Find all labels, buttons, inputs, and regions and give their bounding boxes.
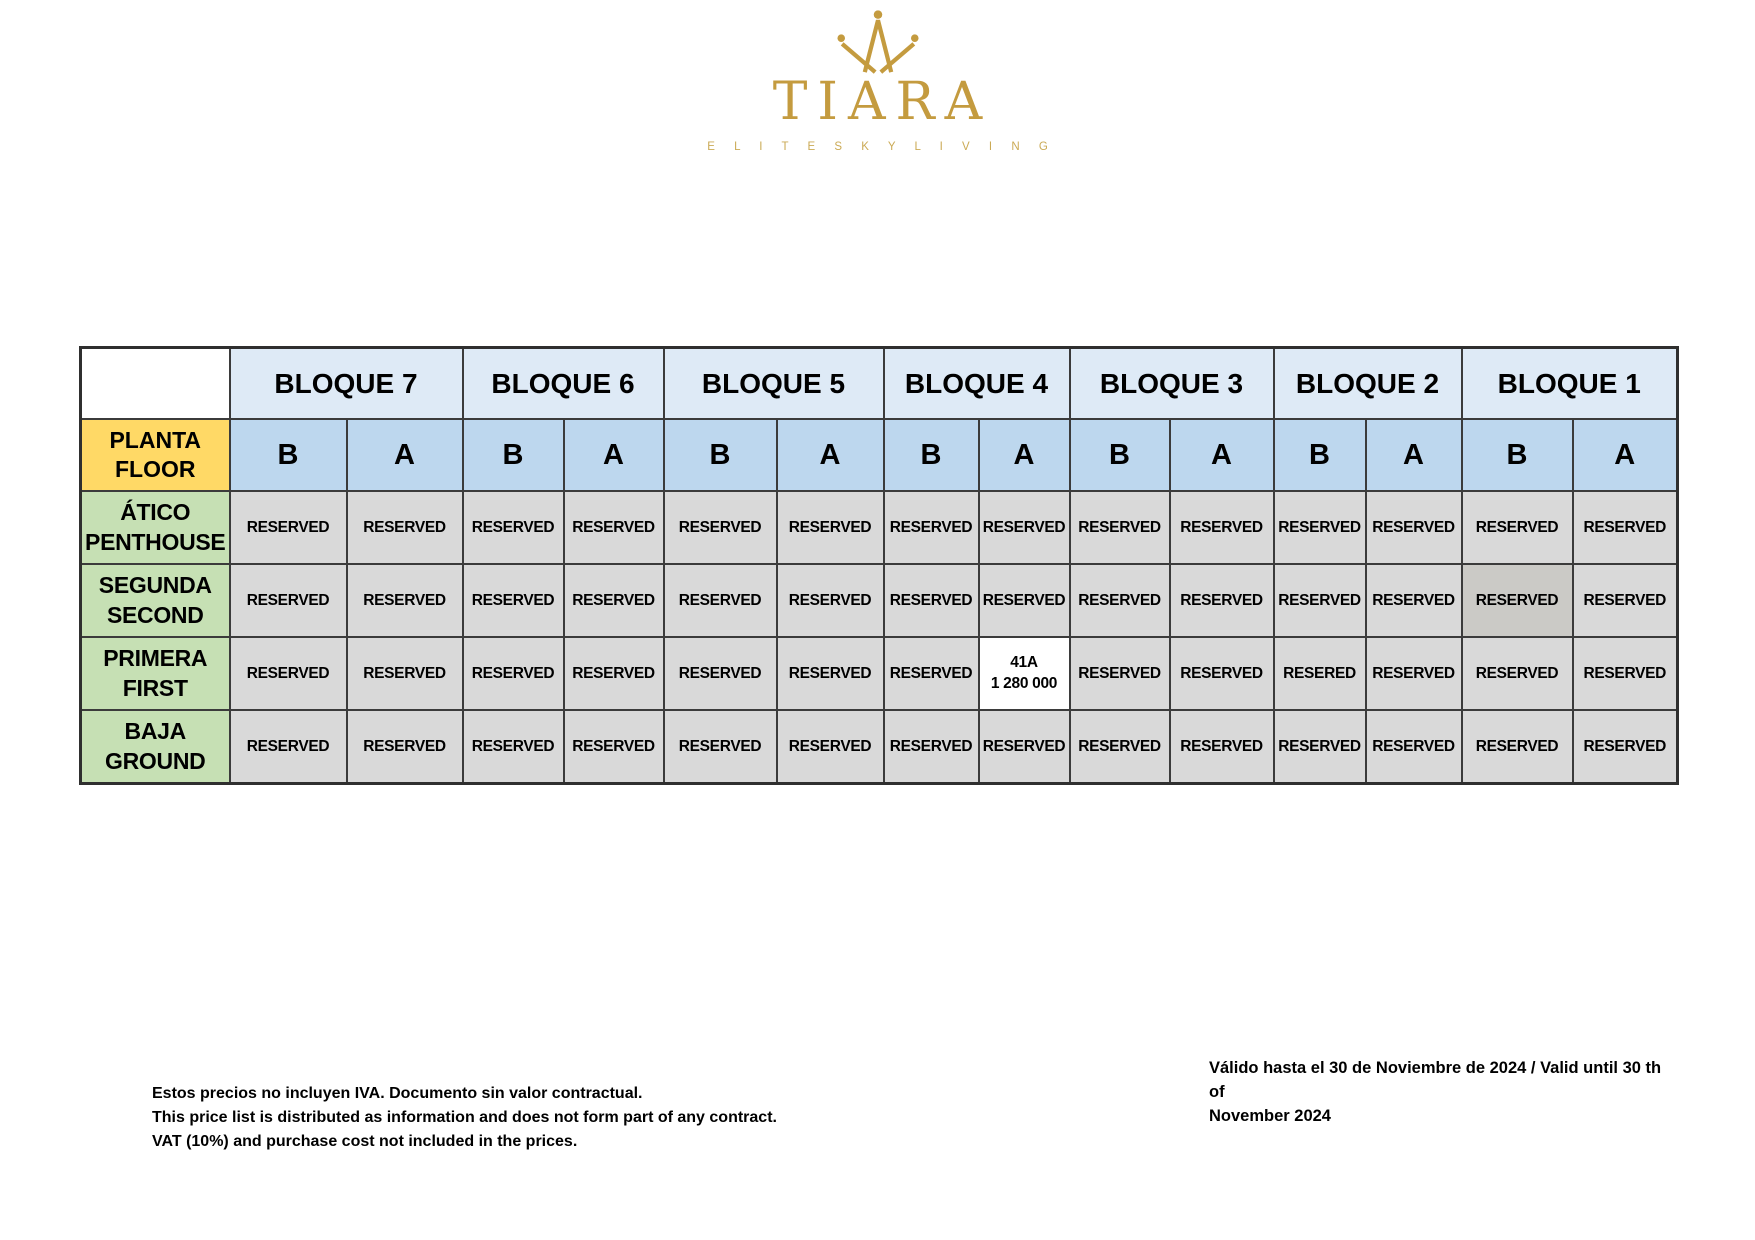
reserved-cell: RESERVED <box>347 564 463 637</box>
reserved-cell: RESERVED <box>777 491 884 564</box>
reserved-cell: RESERVED <box>1462 710 1573 784</box>
reserved-cell: RESERVED <box>664 637 777 710</box>
reserved-cell: RESERVED <box>1366 637 1462 710</box>
price-table: BLOQUE 7BLOQUE 6BLOQUE 5BLOQUE 4BLOQUE 3… <box>79 346 1679 785</box>
reserved-cell: RESERVED <box>1366 710 1462 784</box>
reserved-cell: RESERVED <box>1070 710 1170 784</box>
available-cell-line: 41A <box>982 653 1067 674</box>
column-letter-7A: A <box>347 419 463 491</box>
reserved-cell: RESERVED <box>1462 564 1573 637</box>
reserved-cell: RESERVED <box>463 491 564 564</box>
reserved-cell: RESERVED <box>1170 491 1274 564</box>
column-letter-4A: A <box>979 419 1070 491</box>
crown-icon <box>830 8 926 74</box>
bloque-header-2: BLOQUE 2 <box>1274 348 1462 420</box>
table-corner-blank <box>81 348 230 420</box>
column-letter-3A: A <box>1170 419 1274 491</box>
reserved-cell: RESERVED <box>1274 564 1366 637</box>
reserved-cell: RESERVED <box>564 637 664 710</box>
column-letter-3B: B <box>1070 419 1170 491</box>
floor-label-line: SECOND <box>84 601 227 630</box>
column-letter-5B: B <box>664 419 777 491</box>
footer-disclaimer-line: VAT (10%) and purchase cost not included… <box>152 1130 777 1154</box>
reserved-cell: RESERVED <box>1274 710 1366 784</box>
reserved-cell: RESERVED <box>230 564 347 637</box>
column-letter-7B: B <box>230 419 347 491</box>
reserved-cell: RESERVED <box>1070 637 1170 710</box>
reserved-cell: RESERVED <box>664 564 777 637</box>
available-cell-line: 1 280 000 <box>982 674 1067 695</box>
floor-label: BAJAGROUND <box>81 710 230 784</box>
column-letter-4B: B <box>884 419 979 491</box>
reserved-cell: RESERVED <box>1170 710 1274 784</box>
planta-floor-header: PLANTAFLOOR <box>81 419 230 491</box>
bloque-header-7: BLOQUE 7 <box>230 348 463 420</box>
reserved-cell: RESERVED <box>1070 564 1170 637</box>
reserved-cell: RESERVED <box>664 491 777 564</box>
floor-label-line: ÁTICO <box>84 498 227 527</box>
column-letter-2A: A <box>1366 419 1462 491</box>
floor-label-line: BAJA <box>84 717 227 746</box>
column-letter-1A: A <box>1573 419 1678 491</box>
reserved-cell: RESERVED <box>463 564 564 637</box>
reserved-cell: RESERVED <box>1170 564 1274 637</box>
reserved-cell: RESERVED <box>664 710 777 784</box>
logo: TIARA E L I T E S K Y L I V I N G <box>0 8 1755 153</box>
reserved-cell: RESERVED <box>1274 491 1366 564</box>
brand-title: TIARA <box>0 76 1755 128</box>
reserved-cell: RESERVED <box>1070 491 1170 564</box>
reserved-cell: RESERED <box>1274 637 1366 710</box>
reserved-cell: RESERVED <box>979 710 1070 784</box>
floor-label: SEGUNDASECOND <box>81 564 230 637</box>
reserved-cell: RESERVED <box>884 564 979 637</box>
footer-disclaimer-line: Estos precios no incluyen IVA. Documento… <box>152 1082 777 1106</box>
column-letter-6B: B <box>463 419 564 491</box>
footer-validity-line: November 2024 <box>1209 1104 1669 1128</box>
bloque-header-5: BLOQUE 5 <box>664 348 884 420</box>
reserved-cell: RESERVED <box>347 637 463 710</box>
reserved-cell: RESERVED <box>230 491 347 564</box>
floor-label-line: GROUND <box>84 747 227 776</box>
reserved-cell: RESERVED <box>564 564 664 637</box>
footer-disclaimer-line: This price list is distributed as inform… <box>152 1106 777 1130</box>
bloque-header-1: BLOQUE 1 <box>1462 348 1678 420</box>
floor-label: PRIMERAFIRST <box>81 637 230 710</box>
reserved-cell: RESERVED <box>777 637 884 710</box>
footer-validity-line: Válido hasta el 30 de Noviembre de 2024 … <box>1209 1056 1669 1104</box>
reserved-cell: RESERVED <box>1366 491 1462 564</box>
bloque-header-4: BLOQUE 4 <box>884 348 1070 420</box>
reserved-cell: RESERVED <box>884 710 979 784</box>
reserved-cell: RESERVED <box>1573 710 1678 784</box>
reserved-cell: RESERVED <box>230 637 347 710</box>
reserved-cell: RESERVED <box>884 637 979 710</box>
column-letter-2B: B <box>1274 419 1366 491</box>
floor-label-line: PENTHOUSE <box>84 528 227 557</box>
column-letter-1B: B <box>1462 419 1573 491</box>
planta-floor-header-line: PLANTA <box>84 426 227 455</box>
reserved-cell: RESERVED <box>979 564 1070 637</box>
reserved-cell: RESERVED <box>1462 491 1573 564</box>
reserved-cell: RESERVED <box>1366 564 1462 637</box>
bloque-header-3: BLOQUE 3 <box>1070 348 1274 420</box>
planta-floor-header-line: FLOOR <box>84 455 227 484</box>
reserved-cell: RESERVED <box>1573 637 1678 710</box>
reserved-cell: RESERVED <box>463 637 564 710</box>
reserved-cell: RESERVED <box>347 491 463 564</box>
footer-validity: Válido hasta el 30 de Noviembre de 2024 … <box>1209 1056 1669 1128</box>
page: { "logo": { "brand": "TIARA", "tagline":… <box>0 0 1755 1240</box>
reserved-cell: RESERVED <box>777 564 884 637</box>
reserved-cell: RESERVED <box>564 491 664 564</box>
footer-disclaimer: Estos precios no incluyen IVA. Documento… <box>152 1082 777 1154</box>
reserved-cell: RESERVED <box>347 710 463 784</box>
available-cell: 41A1 280 000 <box>979 637 1070 710</box>
floor-label: ÁTICOPENTHOUSE <box>81 491 230 564</box>
reserved-cell: RESERVED <box>1573 564 1678 637</box>
floor-label-line: SEGUNDA <box>84 571 227 600</box>
floor-label-line: FIRST <box>84 674 227 703</box>
reserved-cell: RESERVED <box>1170 637 1274 710</box>
column-letter-5A: A <box>777 419 884 491</box>
column-letter-6A: A <box>564 419 664 491</box>
brand-tagline: E L I T E S K Y L I V I N G <box>0 141 1755 153</box>
reserved-cell: RESERVED <box>1573 491 1678 564</box>
reserved-cell: RESERVED <box>463 710 564 784</box>
reserved-cell: RESERVED <box>979 491 1070 564</box>
reserved-cell: RESERVED <box>777 710 884 784</box>
reserved-cell: RESERVED <box>230 710 347 784</box>
reserved-cell: RESERVED <box>1462 637 1573 710</box>
bloque-header-6: BLOQUE 6 <box>463 348 664 420</box>
floor-label-line: PRIMERA <box>84 644 227 673</box>
reserved-cell: RESERVED <box>884 491 979 564</box>
reserved-cell: RESERVED <box>564 710 664 784</box>
